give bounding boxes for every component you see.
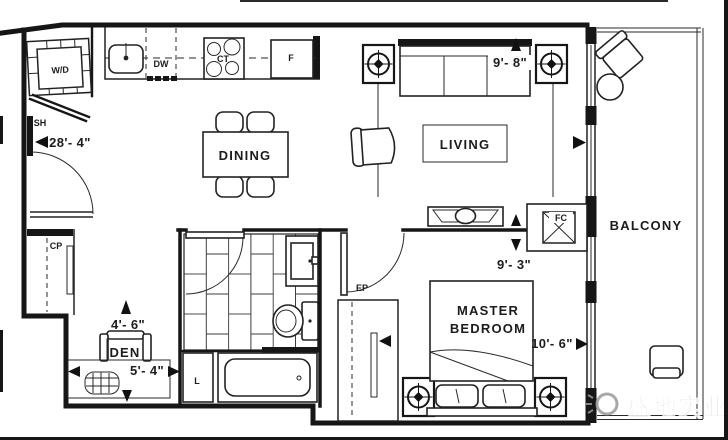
- washer-dryer-label: W/D: [51, 65, 69, 76]
- fridge-label: F: [288, 53, 294, 63]
- bedroom-panel-label: EP: [356, 283, 368, 293]
- watermark: 盛地实业: [586, 394, 728, 420]
- fan-coil-unit: FC: [527, 204, 587, 251]
- coat-closet: CP: [27, 229, 74, 315]
- bathtub: [218, 353, 317, 402]
- kitchen-counter: DW CT F: [105, 27, 320, 81]
- cooktop: CT: [204, 38, 244, 79]
- dimension-overall: 28'- 4": [35, 135, 91, 150]
- column-symbol: [536, 45, 567, 83]
- dining-chair: [216, 176, 243, 197]
- dishwasher-label: DW: [154, 59, 169, 69]
- fan-coil-label: FC: [555, 213, 567, 223]
- dimension-den-depth: 4'- 6": [111, 300, 145, 332]
- dimension-edge-tick: [0, 330, 3, 392]
- dimension-arrow-up: [121, 300, 131, 314]
- dining-set: DINING: [203, 112, 288, 197]
- den-label: DEN: [109, 345, 140, 360]
- linen-label: L: [194, 376, 200, 386]
- dimension-arrow-left: [68, 366, 80, 377]
- entry-door: [30, 152, 93, 217]
- watermark-text: 盛地实业: [628, 394, 728, 420]
- coat-closet-label: CP: [50, 241, 63, 251]
- dimension-bedroom-width: 10'- 6": [531, 336, 588, 351]
- dining-label: DINING: [219, 148, 272, 163]
- bed: [427, 281, 537, 416]
- tv-console: [428, 207, 503, 226]
- column-symbol: [535, 378, 566, 416]
- dimension-overall-text: 28'- 4": [49, 135, 91, 150]
- dimension-edge-tick: [0, 116, 3, 144]
- dimension-living-depth-text: 9'- 3": [497, 257, 531, 272]
- dimension-den-depth-text: 4'- 6": [111, 317, 145, 332]
- headboard: [427, 408, 537, 416]
- washer-dryer-closet: W/D: [27, 38, 92, 95]
- floor-plan: DW CT F W/D SH 28'- 4": [0, 0, 728, 440]
- kitchen-sink: [109, 43, 143, 73]
- closet-arrow: [379, 335, 391, 347]
- balcony-chair-top: [595, 30, 646, 81]
- column-symbol: [363, 45, 394, 83]
- toilet: [273, 302, 318, 340]
- dishwasher: DW: [146, 28, 177, 81]
- linen-closet: L: [183, 353, 213, 402]
- fridge: F: [271, 40, 313, 78]
- bedroom-closet: [338, 300, 398, 421]
- vanity-sink: [286, 236, 318, 286]
- dimension-arrow-up: [511, 214, 521, 226]
- dining-chair: [247, 176, 274, 197]
- armchair: [351, 126, 396, 167]
- shelf-label: SH: [34, 118, 47, 128]
- den-ottoman: [85, 372, 119, 394]
- cooktop-label: CT: [217, 54, 229, 64]
- dimension-arrow-right: [168, 366, 180, 377]
- floor-plan-drawing: DW CT F W/D SH 28'- 4": [0, 0, 728, 440]
- dimension-arrow-left: [35, 136, 48, 148]
- dimension-arrow-down: [511, 239, 521, 251]
- dining-chair: [247, 112, 274, 133]
- master-bedroom-label-line1: MASTER: [457, 303, 519, 318]
- balcony-chair-bottom: [650, 346, 683, 378]
- bedroom-door: EP: [341, 233, 404, 295]
- master-bedroom-label-line2: BEDROOM: [450, 321, 526, 336]
- dimension-arrow-right: [576, 338, 588, 350]
- balcony-door-arrow: [573, 136, 586, 149]
- balcony: BALCONY: [595, 30, 683, 378]
- entry-shelf: SH: [27, 116, 46, 156]
- dining-chair: [216, 112, 243, 133]
- dimension-den-width-text: 5'- 4": [130, 363, 164, 378]
- den: 4'- 6" DEN 5'- 4": [68, 300, 180, 402]
- dimension-arrow-down: [122, 390, 132, 402]
- watermark-logo: [597, 394, 617, 414]
- balcony-table: [597, 74, 623, 100]
- dimension-living-width-text: 9'- 8": [493, 55, 527, 70]
- dimension-bedroom-width-text: 10'- 6": [531, 336, 573, 351]
- living-label: LIVING: [440, 137, 491, 152]
- balcony-label: BALCONY: [610, 218, 683, 233]
